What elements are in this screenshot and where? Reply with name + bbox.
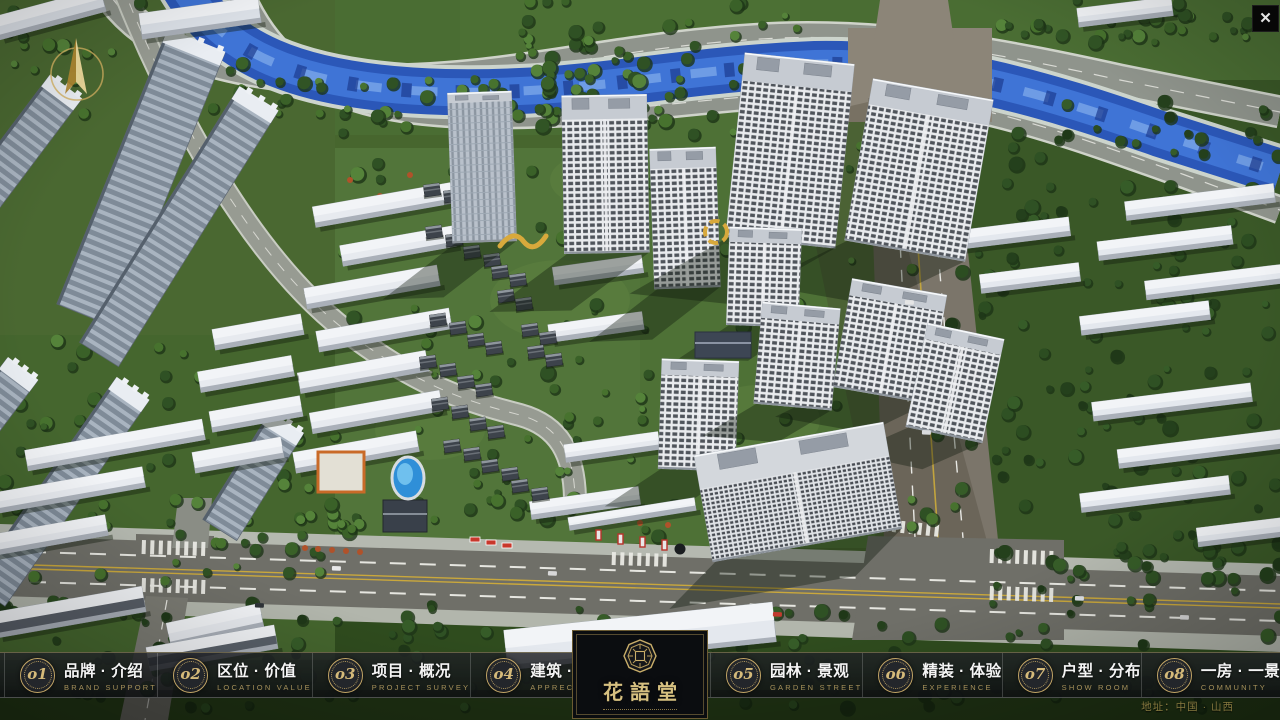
nav-label-en: COMMUNITY [1201, 683, 1280, 692]
presentation-window: ✕ o1 品牌 · 介绍 BRAND SUPPORT o2 区位 · 价值 LO… [0, 0, 1280, 720]
masterplan-render [0, 0, 1280, 720]
nav-number-badge: o3 [328, 658, 363, 693]
nav-item-landscape[interactable]: o5 园林 · 景观 GARDEN STREET [710, 653, 862, 697]
nav-item-scenery[interactable]: o8 一房 · 一景 COMMUNITY [1141, 653, 1280, 697]
seal-emblem-icon [622, 638, 658, 674]
project-address: 地址：中国 · 山西 [1141, 699, 1234, 714]
nav-item-location[interactable]: o2 区位 · 价值 LOCATION VALUE [157, 653, 312, 697]
nav-item-floorplan[interactable]: o7 户型 · 分布 SHOW ROOM [1002, 653, 1141, 697]
nav-label-en: GARDEN STREET [770, 683, 862, 692]
logo-panel[interactable]: 花語堂 [572, 630, 708, 719]
nav-label-zh: 一房 · 一景 [1201, 659, 1280, 681]
nav-label-zh: 品牌 · 介绍 [64, 659, 157, 681]
nav-number-badge: o7 [1018, 658, 1053, 693]
nav-label-en: PROJECT SURVEY [372, 683, 470, 692]
nav-item-project[interactable]: o3 项目 · 概况 PROJECT SURVEY [312, 653, 470, 697]
nav-label-en: LOCATION VALUE [217, 683, 312, 692]
logo-title: 花語堂 [596, 676, 684, 705]
compass-icon [36, 30, 116, 110]
nav-number-badge: o2 [173, 658, 208, 693]
nav-label-zh: 区位 · 价值 [217, 659, 312, 681]
nav-label-en: SHOW ROOM [1062, 683, 1141, 692]
nav-number-badge: o8 [1157, 658, 1192, 693]
nav-number-badge: o1 [20, 658, 55, 693]
nav-group-left: o1 品牌 · 介绍 BRAND SUPPORT o2 区位 · 价值 LOCA… [4, 653, 570, 697]
nav-label-en: EXPERIENCE [922, 683, 1001, 692]
nav-label-zh: 项目 · 概况 [372, 659, 470, 681]
nav-item-brand[interactable]: o1 品牌 · 介绍 BRAND SUPPORT [4, 653, 157, 697]
nav-group-right: o5 园林 · 景观 GARDEN STREET o6 精装 · 体验 EXPE… [710, 653, 1276, 697]
nav-item-interior[interactable]: o6 精装 · 体验 EXPERIENCE [862, 653, 1001, 697]
close-button[interactable]: ✕ [1252, 5, 1279, 32]
nav-label-en: BRAND SUPPORT [64, 683, 157, 692]
nav-label-zh: 精装 · 体验 [922, 659, 1001, 681]
nav-number-badge: o4 [486, 658, 521, 693]
nav-label-zh: 户型 · 分布 [1062, 659, 1141, 681]
nav-number-badge: o6 [878, 658, 913, 693]
nav-label-zh: 园林 · 景观 [770, 659, 862, 681]
logo-subtitle-rule [603, 709, 677, 710]
nav-number-badge: o5 [726, 658, 761, 693]
